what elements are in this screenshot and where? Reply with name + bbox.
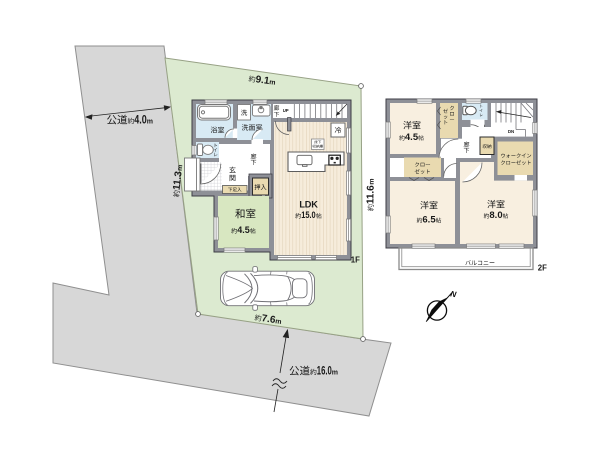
svg-text:11.3: 11.3 xyxy=(172,170,185,190)
svg-text:m: m xyxy=(177,164,185,171)
svg-text:8.0: 8.0 xyxy=(489,210,502,221)
svg-text:m: m xyxy=(269,79,276,87)
svg-text:6.5: 6.5 xyxy=(422,215,436,226)
svg-text:2F: 2F xyxy=(538,264,547,273)
svg-text:LDK: LDK xyxy=(299,200,318,210)
svg-text:m: m xyxy=(147,119,153,126)
svg-text:m: m xyxy=(275,318,282,326)
svg-text:1F: 1F xyxy=(351,255,360,264)
svg-text:m: m xyxy=(369,178,376,184)
svg-text:UP: UP xyxy=(283,108,289,113)
svg-text:11.6: 11.6 xyxy=(365,185,376,205)
svg-text:4.0: 4.0 xyxy=(134,115,147,127)
svg-text:4.5: 4.5 xyxy=(405,132,419,143)
svg-text:4.5: 4.5 xyxy=(237,225,250,235)
svg-text:m: m xyxy=(332,370,338,377)
svg-text:DN: DN xyxy=(508,129,514,134)
svg-text:16.0: 16.0 xyxy=(317,366,332,378)
svg-text:15.0: 15.0 xyxy=(301,210,316,221)
